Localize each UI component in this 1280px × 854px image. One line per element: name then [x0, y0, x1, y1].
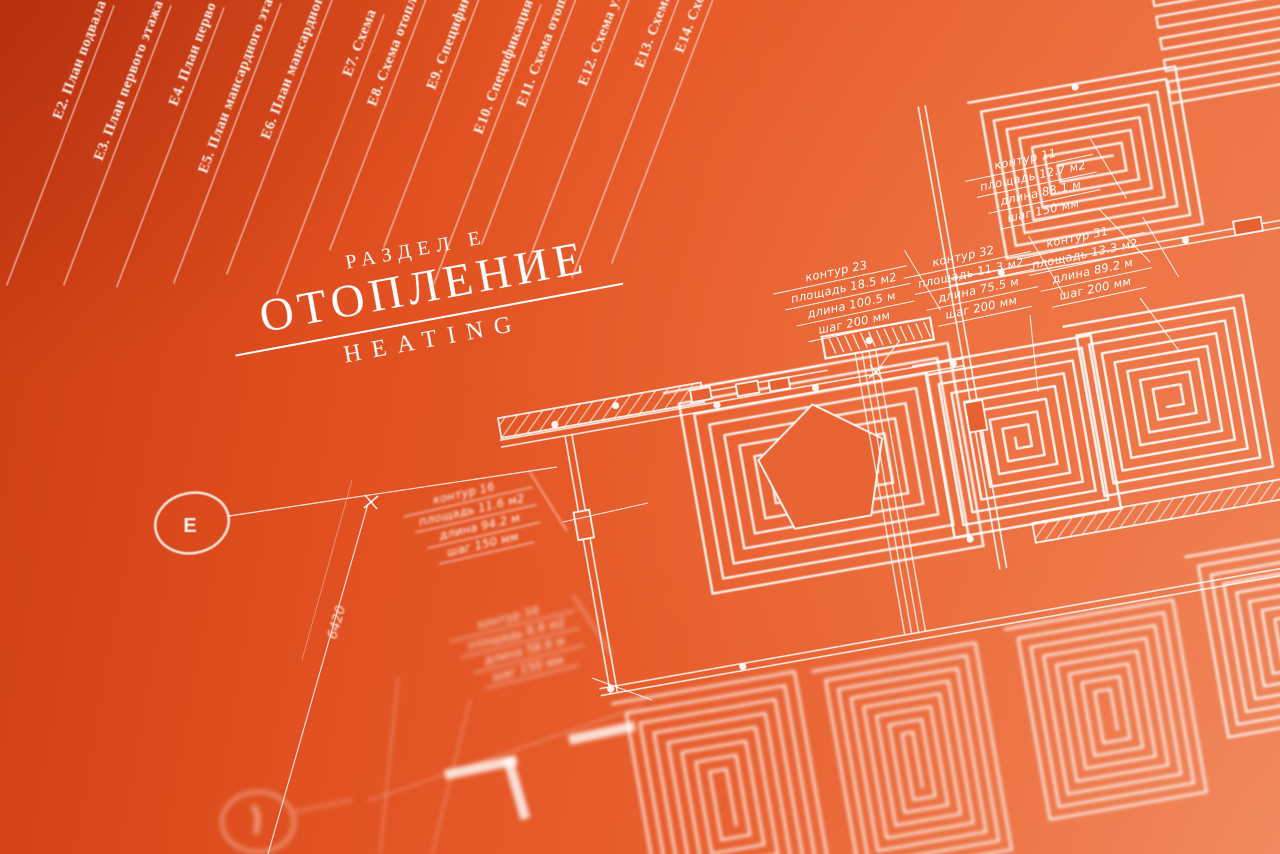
axis-marker-E: Е: [150, 486, 235, 560]
axis-marker-bottom: [222, 792, 352, 852]
wall-line: [500, 359, 963, 441]
heating-coil: [913, 335, 1121, 540]
door-opening: [769, 377, 791, 391]
junction-dot: [865, 336, 873, 344]
floor-plan-group: [422, 0, 1280, 854]
door-opening: [1233, 217, 1263, 236]
heating-coil: [1064, 295, 1273, 498]
heating-coil: [1185, 527, 1280, 740]
wall-line: [599, 526, 1280, 688]
axis-letter: Е: [183, 515, 196, 537]
blurred-wall-fragments: [368, 678, 642, 854]
leader-line: [1030, 315, 1038, 392]
dimension-label: 6420: [324, 604, 349, 641]
door-opening: [964, 400, 987, 433]
door-opening: [690, 387, 712, 402]
heating-coil: [612, 672, 833, 854]
door-opening: [573, 510, 594, 540]
heating-plan-drawing: Е 6420: [0, 0, 1280, 854]
heating-coil: [1005, 600, 1206, 822]
heating-coil: [813, 643, 1012, 854]
blueprint-photo: { "document": { "section_label": "РАЗДЕЛ…: [0, 0, 1280, 854]
door-opening: [736, 381, 760, 397]
